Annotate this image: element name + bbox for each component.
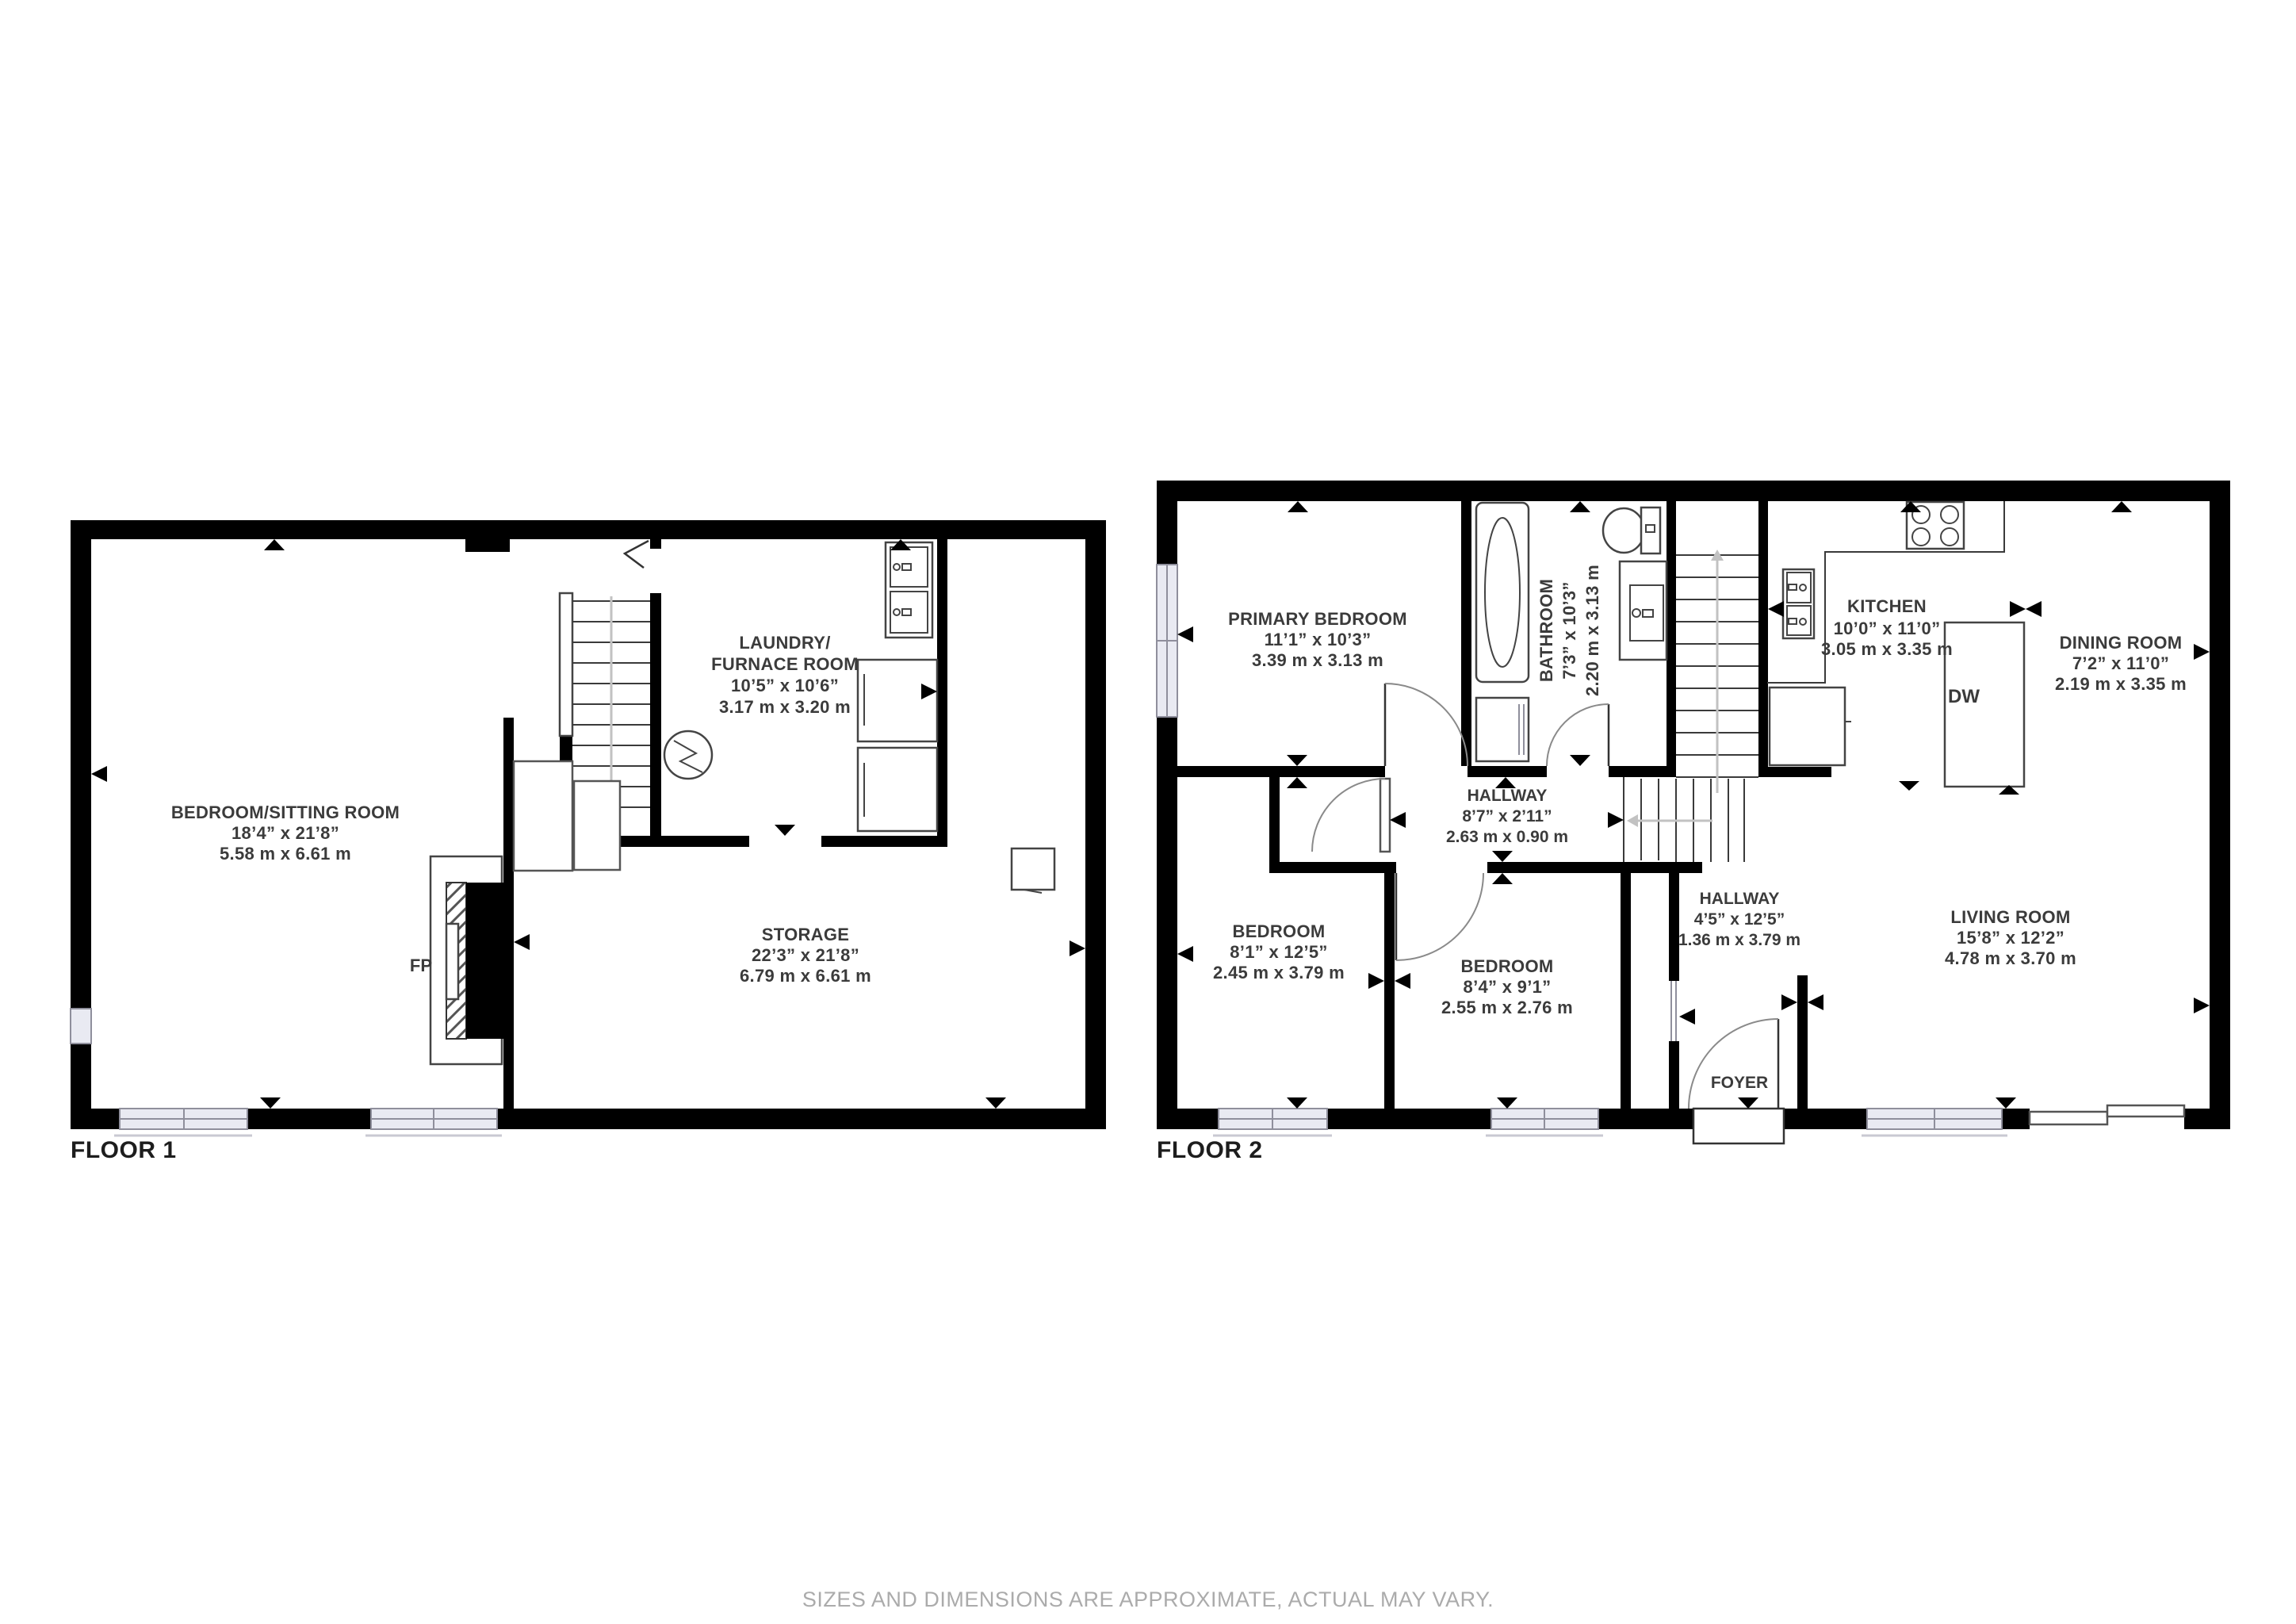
closet-slider bbox=[1669, 981, 1679, 1041]
fireplace-label: FP bbox=[410, 956, 432, 975]
room-label-hallway-vertical: HALLWAY 4’5” x 12’5” 1.36 m x 3.79 m bbox=[1678, 890, 1800, 949]
door-arc bbox=[1385, 684, 1468, 766]
floor1-plan: BEDROOM/SITTING ROOM 18’4” x 21’8” 5.58 … bbox=[71, 520, 1106, 1163]
wall bbox=[650, 593, 661, 836]
wall bbox=[1461, 501, 1471, 766]
dryer-icon bbox=[858, 748, 937, 831]
room-size-imperial: 7’2” x 11’0” bbox=[2072, 653, 2169, 673]
room-size-metric: 2.20 m x 3.13 m bbox=[1582, 565, 1602, 696]
room-name: HALLWAY bbox=[1468, 787, 1548, 805]
opening-marker bbox=[1768, 601, 1784, 617]
door-leaf bbox=[514, 761, 572, 871]
room-size-imperial: 10’0” x 11’0” bbox=[1834, 619, 1941, 638]
floor2-plan: DW bbox=[1157, 481, 2230, 1163]
opening-marker bbox=[1177, 946, 1193, 962]
room-name: BEDROOM bbox=[1461, 956, 1554, 976]
room-name: LIVING ROOM bbox=[1950, 907, 2070, 927]
room-label-hallway-main: HALLWAY 8’7” x 2’11” 2.63 m x 0.90 m bbox=[1446, 787, 1568, 846]
room-size-metric: 2.63 m x 0.90 m bbox=[1446, 828, 1568, 846]
disclaimer-text: SIZES AND DIMENSIONS ARE APPROXIMATE, AC… bbox=[802, 1588, 1494, 1611]
wall bbox=[937, 539, 947, 847]
room-size-imperial: 8’4” x 9’1” bbox=[1464, 977, 1552, 997]
fireplace-mass bbox=[466, 883, 503, 1039]
opening-marker bbox=[1287, 777, 1307, 788]
opening-marker bbox=[91, 766, 107, 782]
room-label-primary-bedroom: PRIMARY BEDROOM 11’1” x 10’3” 3.39 m x 3… bbox=[1228, 609, 1407, 670]
opening-marker bbox=[1738, 1097, 1758, 1109]
room-size-metric: 5.58 m x 6.61 m bbox=[220, 844, 351, 864]
opening-marker bbox=[1287, 1097, 1307, 1109]
room-size-imperial: 22’3” x 21’8” bbox=[752, 945, 859, 965]
room-size-imperial: 8’7” x 2’11” bbox=[1462, 807, 1552, 825]
room-label-kitchen: KITCHEN 10’0” x 11’0” 3.05 m x 3.35 m bbox=[1821, 596, 1953, 659]
opening-marker bbox=[1288, 501, 1308, 512]
door-arc bbox=[1396, 873, 1483, 960]
room-label-laundry-furnace: LAUNDRY/ FURNACE ROOM 10’5” x 10’6” 3.17… bbox=[711, 633, 859, 717]
sliding-door-panel bbox=[2107, 1105, 2184, 1116]
bathroom-closet bbox=[1476, 698, 1529, 761]
room-label-foyer: FOYER bbox=[1711, 1074, 1768, 1092]
room-name: PRIMARY BEDROOM bbox=[1228, 609, 1407, 629]
stair-rail bbox=[560, 593, 572, 736]
opening-marker bbox=[1899, 781, 1919, 791]
wall bbox=[1621, 873, 1631, 1109]
laundry-sink-icon bbox=[886, 542, 932, 638]
opening-marker bbox=[1996, 1097, 2016, 1109]
room-name: BATHROOM bbox=[1536, 579, 1556, 682]
furnace bbox=[664, 731, 712, 779]
door-leaf bbox=[574, 781, 620, 870]
room-size-metric: 3.17 m x 3.20 m bbox=[719, 697, 851, 717]
door-leaf bbox=[1380, 779, 1390, 852]
room-name: LAUNDRY/ bbox=[739, 633, 830, 653]
opening-marker bbox=[1492, 851, 1513, 862]
toilet-bowl bbox=[1603, 508, 1644, 553]
fireplace-insert bbox=[446, 924, 458, 999]
floor2-title: FLOOR 2 bbox=[1157, 1137, 1263, 1163]
washer bbox=[858, 660, 937, 741]
floor-plan-page: BEDROOM/SITTING ROOM 18’4” x 21’8” 5.58 … bbox=[0, 0, 2296, 1624]
room-size-metric: 2.55 m x 2.76 m bbox=[1441, 998, 1573, 1017]
room-name: BEDROOM/SITTING ROOM bbox=[171, 802, 400, 822]
room-size-metric: 2.45 m x 3.79 m bbox=[1213, 963, 1345, 982]
opening-marker bbox=[1497, 1097, 1517, 1109]
wall bbox=[1384, 873, 1395, 1109]
opening-marker bbox=[1570, 755, 1590, 766]
entry-opening bbox=[1693, 1109, 1784, 1129]
floor1-title: FLOOR 1 bbox=[71, 1137, 177, 1163]
room-name: BEDROOM bbox=[1233, 921, 1326, 941]
opening-marker bbox=[514, 934, 530, 950]
opening-marker bbox=[1390, 812, 1406, 828]
wall bbox=[1758, 501, 1768, 767]
opening-marker bbox=[1781, 994, 1797, 1010]
opening-marker bbox=[2111, 501, 2132, 512]
wall bbox=[1758, 767, 1831, 777]
opening-marker bbox=[264, 539, 285, 550]
sink-cabinet bbox=[886, 542, 932, 638]
opening-marker bbox=[1368, 973, 1384, 989]
opening-marker bbox=[1395, 973, 1410, 989]
room-size-metric: 2.19 m x 3.35 m bbox=[2055, 674, 2187, 694]
wall bbox=[1085, 520, 1106, 1129]
electrical-panel-icon bbox=[1012, 848, 1054, 893]
room-label-bedroom-left: BEDROOM 8’1” x 12’5” 2.45 m x 3.79 m bbox=[1213, 921, 1345, 982]
opening-marker bbox=[1177, 626, 1193, 642]
room-label-dining-room: DINING ROOM 7’2” x 11’0” 2.19 m x 3.35 m bbox=[2055, 633, 2187, 694]
room-label-bathroom: BATHROOM 7’3” x 10’3” 2.20 m x 3.13 m bbox=[1536, 565, 1602, 696]
vanity-sink-icon bbox=[1620, 561, 1667, 660]
wall bbox=[2210, 481, 2230, 1129]
toilet-tank bbox=[1641, 507, 1660, 553]
opening-marker bbox=[1570, 501, 1590, 512]
wall bbox=[1269, 777, 1280, 862]
room-label-living-room: LIVING ROOM 15’8” x 12’2” 4.78 m x 3.70 … bbox=[1945, 907, 2076, 968]
furnace-icon bbox=[664, 731, 712, 779]
room-size-metric: 6.79 m x 6.61 m bbox=[740, 966, 871, 986]
bathtub-icon bbox=[1476, 503, 1529, 682]
room-size-imperial: 4’5” x 12’5” bbox=[1694, 910, 1785, 929]
room-size-imperial: 18’4” x 21’8” bbox=[232, 823, 339, 843]
wall bbox=[503, 718, 514, 1112]
floor-plan-canvas: BEDROOM/SITTING ROOM 18’4” x 21’8” 5.58 … bbox=[0, 0, 2296, 1624]
opening-marker bbox=[1070, 940, 1085, 956]
opening-marker bbox=[2194, 644, 2210, 660]
kitchen-island: DW bbox=[1945, 622, 2024, 787]
door-opening bbox=[1396, 862, 1487, 873]
room-label-bedroom-middle: BEDROOM 8’4” x 9’1” 2.55 m x 2.76 m bbox=[1441, 956, 1573, 1017]
fridge-icon bbox=[1770, 688, 1845, 765]
room-size-imperial: 7’3” x 10’3” bbox=[1559, 581, 1579, 679]
sliding-door-panel bbox=[2030, 1112, 2107, 1124]
wall bbox=[71, 520, 1106, 539]
washer-icon bbox=[858, 660, 937, 741]
room-name: HALLWAY bbox=[1700, 890, 1780, 908]
closet bbox=[1476, 698, 1529, 761]
room-size-metric: 3.39 m x 3.13 m bbox=[1252, 650, 1383, 670]
fireplace-icon bbox=[430, 856, 503, 1064]
room-size-imperial: 11’1” x 10’3” bbox=[1265, 630, 1372, 649]
door-chevron bbox=[625, 541, 649, 568]
room-size-imperial: 8’1” x 12’5” bbox=[1230, 942, 1327, 962]
door-opening bbox=[749, 836, 821, 847]
room-name: KITCHEN bbox=[1847, 596, 1927, 616]
opening-marker bbox=[1492, 873, 1513, 884]
chimney-bump bbox=[465, 539, 510, 552]
opening-marker bbox=[775, 825, 795, 836]
room-size-imperial: 15’8” x 12’2” bbox=[1957, 928, 2064, 948]
tub bbox=[1476, 503, 1529, 682]
opening-marker bbox=[1679, 1009, 1695, 1025]
room-size-metric: 1.36 m x 3.79 m bbox=[1678, 931, 1800, 949]
wall bbox=[650, 539, 661, 549]
opening-marker bbox=[1287, 755, 1307, 766]
wall bbox=[1797, 975, 1808, 1109]
panel bbox=[1012, 848, 1054, 890]
room-size-metric: 4.78 m x 3.70 m bbox=[1945, 948, 2076, 968]
dishwasher-label: DW bbox=[1948, 686, 1980, 707]
room-size-imperial: 10’5” x 10’6” bbox=[731, 676, 839, 695]
door-opening bbox=[1385, 766, 1468, 777]
room-name: DINING ROOM bbox=[2060, 633, 2183, 653]
wall bbox=[1157, 481, 2230, 501]
room-name: STORAGE bbox=[762, 925, 850, 944]
opening-marker bbox=[2026, 601, 2042, 617]
door-arc bbox=[1312, 779, 1385, 852]
opening-marker bbox=[2010, 601, 2026, 617]
opening-marker bbox=[985, 1097, 1006, 1109]
door-arc bbox=[1689, 1019, 1778, 1109]
opening-marker bbox=[260, 1097, 281, 1109]
room-label-bedroom-sitting: BEDROOM/SITTING ROOM 18’4” x 21’8” 5.58 … bbox=[171, 802, 400, 864]
room-label-storage: STORAGE 22’3” x 21’8” 6.79 m x 6.61 m bbox=[740, 925, 871, 986]
room-size-metric: 3.05 m x 3.35 m bbox=[1821, 639, 1953, 659]
stair-direction-arrow bbox=[1627, 814, 1638, 827]
room-name: FURNACE ROOM bbox=[711, 654, 859, 674]
door-opening bbox=[1547, 766, 1609, 777]
dryer bbox=[858, 748, 937, 831]
opening-marker bbox=[2194, 998, 2210, 1013]
toilet-icon bbox=[1603, 507, 1660, 553]
opening-marker bbox=[1608, 812, 1624, 828]
opening-marker bbox=[1808, 994, 1823, 1010]
wall bbox=[1667, 501, 1676, 777]
window bbox=[71, 1009, 91, 1044]
